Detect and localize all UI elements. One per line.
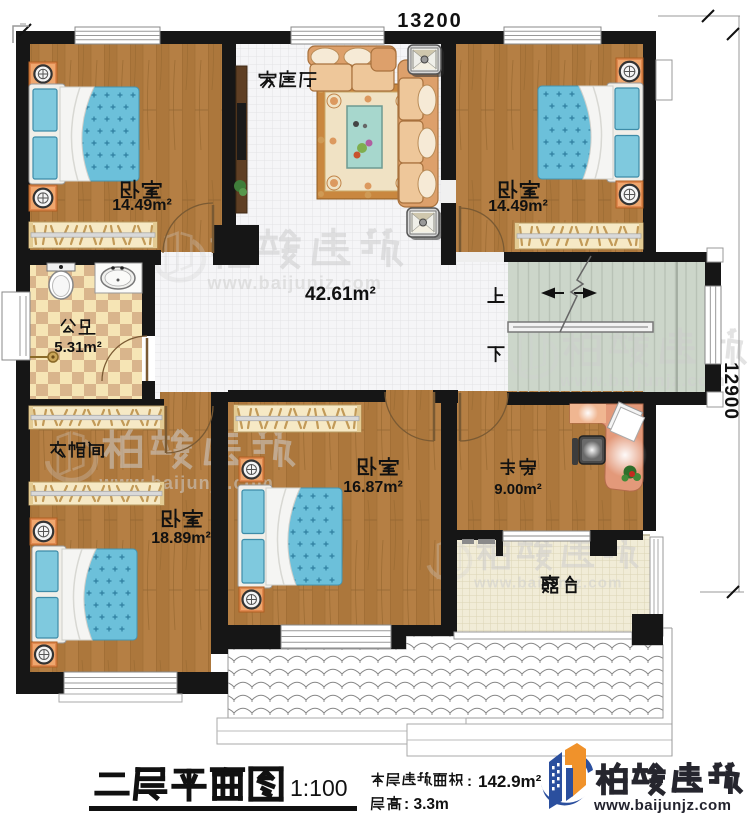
- svg-text:1:100: 1:100: [290, 775, 348, 801]
- svg-text:9.00m²: 9.00m²: [494, 481, 542, 498]
- svg-text:14.49m²: 14.49m²: [488, 198, 548, 215]
- svg-text:142.9m²: 142.9m²: [478, 772, 542, 791]
- svg-text:12900: 12900: [720, 362, 741, 420]
- svg-text:42.61m²: 42.61m²: [305, 284, 376, 305]
- svg-text:www.baijunjz.com: www.baijunjz.com: [593, 797, 731, 814]
- svg-text:16.87m²: 16.87m²: [343, 479, 403, 496]
- svg-text:18.89m²: 18.89m²: [151, 530, 211, 547]
- svg-text:13200: 13200: [397, 10, 463, 32]
- svg-text::: :: [467, 773, 472, 790]
- svg-text:14.49m²: 14.49m²: [112, 197, 172, 214]
- svg-text:www.baijunjz.com: www.baijunjz.com: [559, 371, 726, 390]
- svg-text:: 3.3m: : 3.3m: [404, 796, 449, 813]
- svg-text:5.31m²: 5.31m²: [54, 339, 102, 356]
